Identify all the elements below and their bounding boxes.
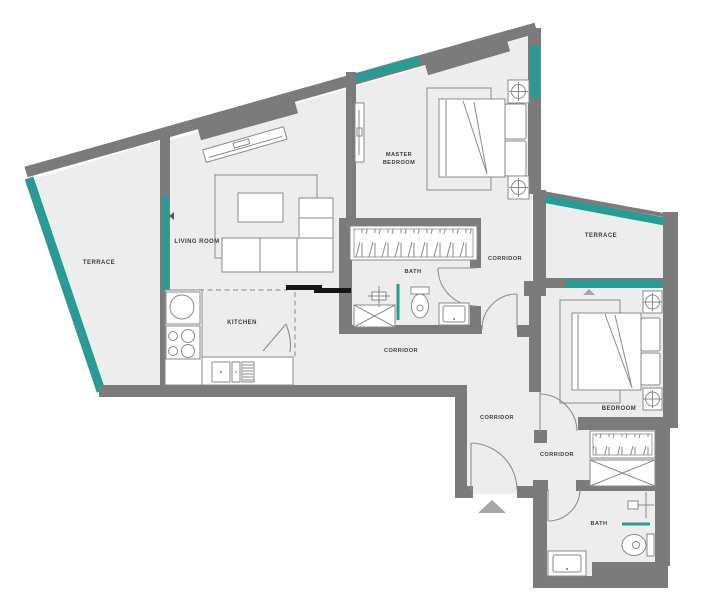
- bedroom-dresser: [590, 460, 655, 486]
- bedroom-bed: [572, 313, 660, 390]
- window-right: [530, 45, 539, 97]
- coffee-table: [238, 193, 283, 222]
- toilet-icon: [622, 534, 654, 556]
- bedroom-wardrobe: [590, 431, 655, 458]
- room-label-living-room: LIVING ROOM: [174, 239, 219, 245]
- nightstand-lamp-icon: [508, 80, 529, 103]
- room-label-bath-second: BATH: [591, 521, 608, 527]
- room-label-terrace-left: TERRACE: [83, 260, 115, 266]
- counter-bar: [314, 288, 351, 293]
- master-bed: [439, 99, 526, 177]
- room-label-corridor-bedroom: CORRIDOR: [540, 452, 574, 458]
- master-wardrobe: [350, 226, 477, 260]
- room-label-bedroom: BEDROOM: [602, 406, 636, 412]
- floorplan-page: TERRACE LIVING ROOM KITCHEN MASTER BEDRO…: [0, 0, 709, 600]
- window-bedroom: [565, 279, 662, 287]
- floorplan-canvas: TERRACE LIVING ROOM KITCHEN MASTER BEDRO…: [0, 0, 709, 600]
- room-label-corridor-master: CORRIDOR: [488, 256, 522, 262]
- fridge-icon: [166, 292, 200, 324]
- sink-icon: [439, 303, 469, 325]
- nightstand-lamp-icon: [643, 388, 662, 410]
- toilet-icon: [411, 287, 429, 318]
- room-label-master-bedroom: MASTER: [386, 152, 412, 158]
- room-label-corridor-entry: CORRIDOR: [480, 415, 514, 421]
- shower-tray-icon: [354, 305, 395, 327]
- stove-icon: [166, 326, 200, 359]
- entrance-arrow-icon: [478, 500, 506, 513]
- nightstand-lamp-icon: [643, 291, 662, 313]
- sink-icon: [548, 551, 586, 576]
- room-label-kitchen: KITCHEN: [227, 320, 257, 326]
- floor-terrace-left: [30, 141, 160, 392]
- room-label-master-bedroom: BEDROOM: [383, 160, 415, 166]
- window-living: [162, 196, 169, 290]
- nightstand-lamp-icon: [508, 176, 529, 199]
- room-label-corridor-main: CORRIDOR: [384, 348, 418, 354]
- room-label-terrace-right: TERRACE: [585, 233, 617, 239]
- room-label-bath-master: BATH: [405, 269, 422, 275]
